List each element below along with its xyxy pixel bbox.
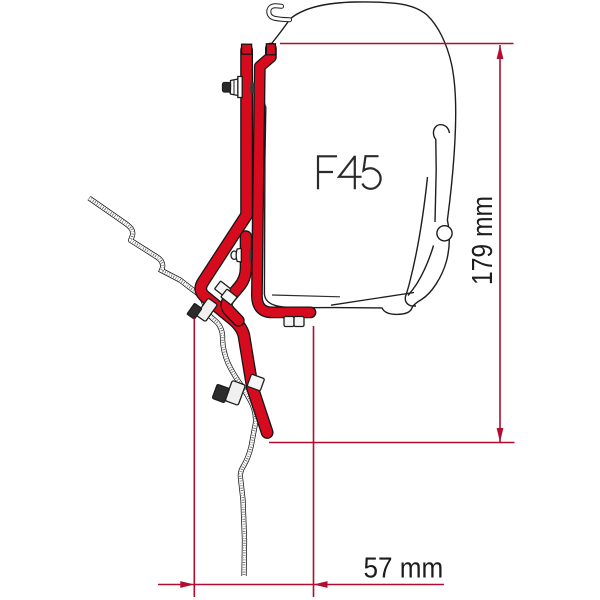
svg-text:57 mm: 57 mm [364,551,444,584]
svg-text:179 mm: 179 mm [466,196,498,285]
